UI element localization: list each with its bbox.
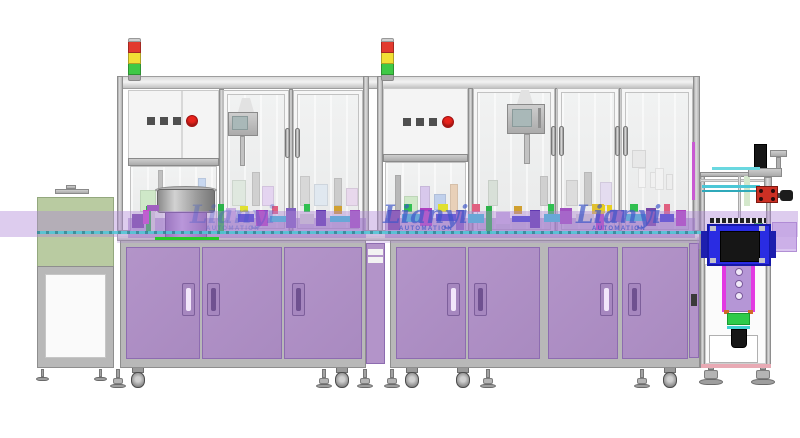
panel-square-button	[173, 117, 181, 125]
interior-equipment	[232, 180, 246, 206]
control-buttons-module1	[147, 115, 198, 127]
machinery-part	[226, 208, 236, 220]
side-latch	[691, 294, 697, 306]
leveling-foot	[634, 369, 650, 388]
door-handle	[559, 126, 564, 156]
cyan-rail-2	[702, 190, 760, 192]
machinery-part	[486, 206, 492, 234]
column-hole	[735, 268, 743, 276]
hmi-screen	[512, 109, 532, 127]
machinery-part	[664, 204, 670, 214]
cabinet-foot	[36, 369, 49, 381]
caster-wheel	[456, 366, 470, 388]
machinery-part	[468, 214, 484, 223]
machinery-part	[300, 214, 314, 224]
caster-wheel	[335, 366, 349, 388]
fixture-tab	[710, 226, 716, 231]
machinery-part	[438, 204, 448, 212]
stack-light	[381, 38, 394, 81]
stack-light-base	[381, 75, 394, 81]
cabinet-handle	[600, 283, 613, 316]
machinery-part	[626, 214, 646, 221]
machinery-part	[610, 210, 624, 222]
toothed-strip	[710, 218, 766, 223]
door-handle	[615, 126, 620, 156]
interior-equipment	[638, 168, 646, 188]
press-cylinder	[731, 329, 747, 348]
hopper-funnel	[517, 90, 533, 104]
control-buttons-module2	[403, 116, 454, 128]
cyan-rail	[702, 185, 760, 188]
machinery-part	[218, 204, 224, 234]
caster-wheel	[131, 366, 145, 388]
panel-stop-button	[442, 116, 454, 128]
panel-square-button	[429, 118, 437, 126]
mid-rail-module1	[128, 158, 219, 166]
stack-light-base	[128, 75, 141, 81]
interior-equipment	[252, 172, 260, 206]
machinery-part	[630, 204, 638, 212]
interior-equipment	[666, 174, 673, 190]
stack-light-segment	[381, 53, 394, 64]
cabinet-handle	[447, 283, 460, 316]
machinery-part	[240, 206, 248, 212]
machinery-part	[472, 204, 480, 212]
frame-post	[117, 76, 123, 240]
interior-equipment	[346, 188, 358, 206]
machinery-part	[334, 206, 342, 214]
fixture-tab	[759, 226, 765, 231]
bowl-feeder-drum	[157, 189, 215, 213]
panel-square-button	[416, 118, 424, 126]
guide-rod	[738, 176, 741, 222]
infeed-top-cap	[55, 189, 89, 194]
machinery-part	[350, 210, 360, 228]
stack-light-segment	[128, 53, 141, 64]
cabinet-handle	[292, 283, 305, 316]
machinery-part	[304, 204, 310, 212]
machinery-part	[660, 214, 674, 222]
conveyor-edge-line	[37, 231, 770, 234]
column-band	[368, 249, 383, 255]
machinery-part	[330, 216, 350, 222]
clamp-block	[756, 186, 778, 203]
interior-equipment	[334, 178, 342, 206]
mid-rail-module2	[383, 154, 468, 162]
interior-equipment	[314, 184, 328, 206]
leveling-foot	[110, 369, 126, 388]
machinery-part	[238, 214, 254, 222]
hmi-pole	[524, 134, 530, 164]
machinery-part	[456, 210, 464, 230]
panel-square-button	[147, 117, 155, 125]
machinery-part	[676, 210, 686, 226]
fixture-opening	[720, 231, 760, 262]
hmi-screen	[232, 116, 248, 130]
pink-base-band	[701, 364, 771, 368]
caster-wheel	[405, 366, 419, 388]
panel-square-button	[160, 117, 168, 125]
interior-equipment	[488, 180, 498, 206]
machinery-part	[646, 208, 656, 226]
interior-equipment	[300, 176, 310, 206]
caster-wheel	[663, 366, 677, 388]
interior-equipment	[600, 182, 612, 206]
machinery-part	[404, 204, 412, 212]
interior-equipment	[450, 184, 458, 212]
panel-stop-button	[186, 115, 198, 127]
machinery-part	[548, 204, 554, 214]
door-handle	[285, 128, 290, 158]
interior-equipment	[262, 186, 274, 206]
infeed-top-knob	[66, 185, 76, 189]
door-handle	[623, 126, 628, 156]
machinery-part	[402, 214, 420, 222]
cabinet-handle	[182, 283, 195, 316]
fixture-flange	[701, 231, 707, 258]
machinery-part	[272, 206, 278, 214]
cyan-rail-top	[712, 167, 760, 170]
tool-column-edge	[751, 264, 755, 312]
machinery-part	[600, 205, 605, 213]
stack-light-segment	[128, 64, 141, 75]
hopper-funnel	[238, 98, 254, 112]
machinery-part	[514, 206, 522, 214]
interior-equipment	[632, 150, 646, 168]
cabinet-handle	[207, 283, 220, 316]
machinery-part	[512, 216, 530, 222]
machinery-part	[596, 214, 604, 230]
door-handle	[551, 126, 556, 156]
fixture-tab	[710, 258, 716, 263]
panel-square-button	[403, 118, 411, 126]
column-band	[368, 257, 383, 263]
machinery-part	[388, 210, 400, 230]
cabinet-handle	[628, 283, 641, 316]
fixture-tab	[759, 258, 765, 263]
machine-render: Lianyi AUTOMATION Lianyi AUTOMATION Lian…	[0, 0, 800, 438]
machinery-part	[420, 208, 432, 226]
machinery-part	[151, 210, 155, 232]
machinery-part	[256, 210, 268, 226]
column-hole	[735, 292, 743, 300]
hmi-pole	[240, 136, 245, 166]
machinery-part	[560, 208, 572, 224]
green-coupler	[727, 313, 750, 325]
column-hole	[735, 280, 743, 288]
hmi-button-strip	[538, 108, 541, 128]
stack-light-segment	[128, 42, 141, 53]
machinery-part	[286, 208, 296, 228]
leveling-foot	[480, 369, 496, 388]
cabinet-handle	[474, 283, 487, 316]
stack-light	[128, 38, 141, 81]
infeed-cabinet-panel	[45, 274, 106, 358]
machinery-part	[436, 214, 456, 221]
machinery-part	[544, 214, 560, 222]
stack-light-segment	[381, 42, 394, 53]
fixture-flange	[770, 231, 776, 258]
interior-equipment	[655, 168, 664, 190]
adjust-knob	[780, 190, 793, 201]
tool-column-edge	[722, 264, 726, 312]
magenta-accent-strip	[692, 142, 695, 200]
leveling-foot	[316, 369, 332, 388]
interior-equipment	[566, 180, 578, 206]
feeder-hook	[143, 210, 149, 224]
green-belt-line	[155, 237, 219, 240]
leveling-foot	[357, 369, 373, 388]
frame-post	[363, 76, 369, 240]
press-frame-post	[700, 172, 705, 368]
stack-light-segment	[381, 64, 394, 75]
machinery-part	[496, 212, 510, 224]
interior-equipment	[584, 172, 592, 206]
press-second-beam	[700, 179, 771, 182]
cabinet-foot	[94, 369, 107, 381]
side-bracket	[770, 150, 787, 157]
leveling-foot	[384, 369, 400, 388]
machinery-part	[576, 214, 594, 222]
interior-equipment	[540, 176, 548, 206]
interior-equipment	[395, 175, 401, 215]
side-bracket-stem	[776, 157, 781, 169]
door-handle	[295, 128, 300, 158]
machinery-part	[316, 210, 326, 226]
machinery-part	[530, 210, 540, 228]
